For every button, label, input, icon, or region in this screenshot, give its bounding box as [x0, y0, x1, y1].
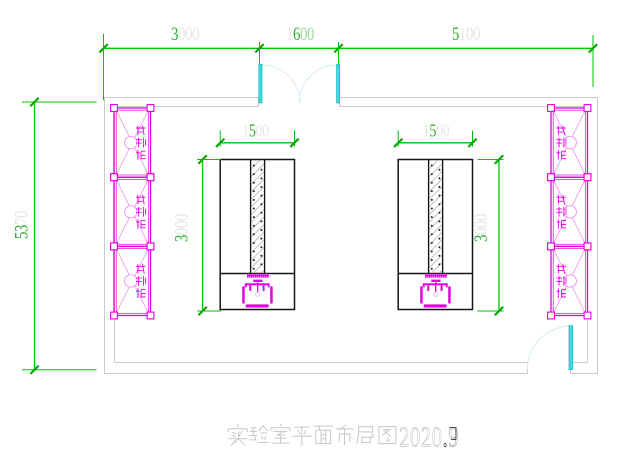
svg-text:2020.9: 2020.9: [399, 422, 459, 453]
svg-text:5370: 5370: [11, 211, 32, 239]
svg-text:1600: 1600: [286, 23, 314, 44]
svg-text:3000: 3000: [171, 23, 199, 44]
svg-text:1500: 1500: [423, 122, 450, 141]
svg-text:5100: 5100: [452, 23, 480, 44]
svg-text:3000: 3000: [171, 214, 192, 242]
svg-text:3000: 3000: [470, 214, 491, 242]
svg-text:1500: 1500: [242, 122, 269, 141]
